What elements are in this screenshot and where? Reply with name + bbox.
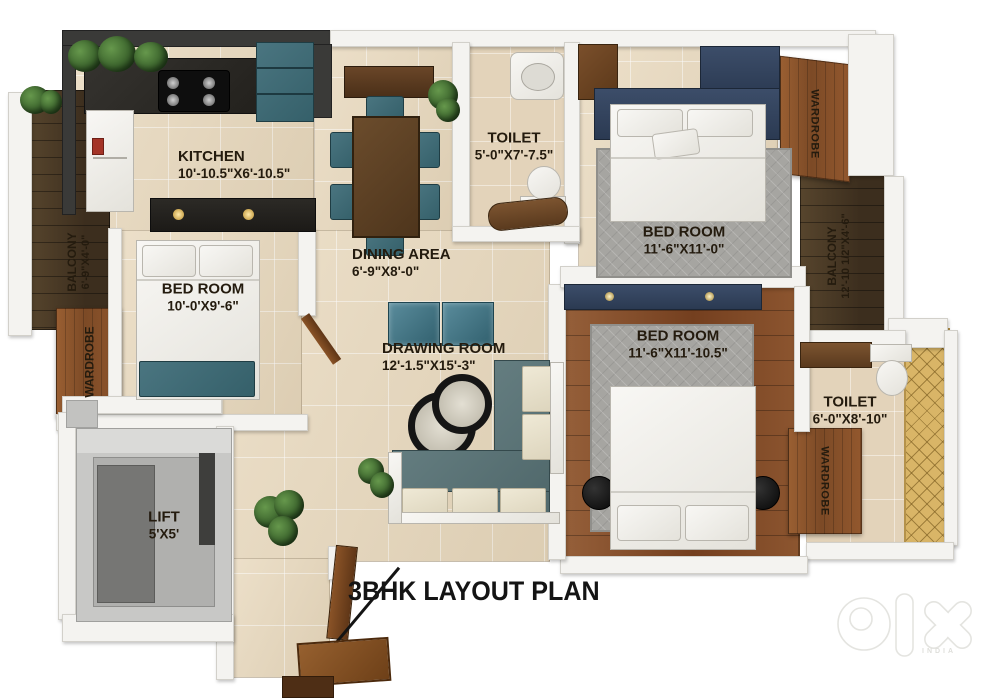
kitchen-label: KITCHEN 10'-10.5"X6'-10.5" bbox=[178, 148, 290, 183]
toilet-top-label: TOILET 5'-0"X7'-7.5" bbox=[475, 130, 554, 165]
wall-below-bedroom-br bbox=[560, 556, 808, 574]
plant-kitchen bbox=[68, 36, 172, 76]
olx-india-text: INDIA bbox=[922, 648, 956, 655]
coffee-table-2 bbox=[432, 374, 492, 434]
burner bbox=[203, 94, 215, 106]
bedroom-br-label: BED ROOM 11'-6"X11'-10.5" bbox=[628, 328, 728, 363]
bedroom-tr-bed bbox=[610, 104, 766, 222]
toilet-top-wc-bowl bbox=[527, 166, 561, 200]
lobby-step bbox=[66, 400, 98, 428]
bedroom-tr-label: BED ROOM 11'-6"X11'-0" bbox=[643, 224, 726, 259]
wall-bedroom-left-right bbox=[298, 228, 316, 316]
kitchen-cabinet-teal bbox=[256, 42, 314, 122]
wall-top-right-corner bbox=[848, 34, 894, 176]
balcony-right-dims: 12'-10 1/2"X4'-6" bbox=[840, 213, 853, 298]
bedroom-br-valance bbox=[564, 284, 762, 310]
pillow bbox=[199, 245, 253, 277]
shelf-line bbox=[257, 93, 313, 95]
wall-dining-toilet bbox=[452, 42, 470, 236]
pillow bbox=[685, 505, 749, 541]
pillow-accent bbox=[651, 128, 700, 160]
balcony-left-dims: 6'-9"X4'-0" bbox=[80, 232, 93, 291]
bed-bench bbox=[139, 361, 255, 397]
lift-label: LIFT 5'X5' bbox=[148, 509, 180, 544]
dining-console bbox=[344, 66, 434, 98]
burner bbox=[167, 94, 179, 106]
toilet-right-wc-bowl bbox=[876, 360, 908, 396]
balcony-right-label: BALCONY 12'-10 1/2"X4'-6" bbox=[825, 213, 853, 298]
toilet-top-sink bbox=[510, 52, 564, 100]
bedroom-tr-dims: 11'-6"X11'-0" bbox=[643, 242, 726, 258]
drawing-room-label: DRAWING ROOM 12'-1.5"X15'-3" bbox=[382, 340, 505, 375]
wall-light bbox=[705, 292, 714, 301]
wall-mosaic-right bbox=[944, 330, 958, 546]
kitchen-name: KITCHEN bbox=[178, 148, 290, 166]
wall-light bbox=[605, 292, 614, 301]
wardrobe-tr-label: WARDROBE bbox=[807, 89, 820, 158]
plant-dining bbox=[428, 80, 462, 126]
toilet-right-name: TOILET bbox=[813, 394, 888, 412]
sofa-cushion bbox=[522, 366, 552, 412]
sofa-front-edge bbox=[396, 512, 560, 524]
drawing-room-name: DRAWING ROOM bbox=[382, 340, 505, 358]
bedroom-left-label: BED ROOM 10'-0'X9'-6" bbox=[162, 281, 245, 316]
plant-balcony-left bbox=[18, 84, 64, 120]
balcony-left-label: BALCONY 6'-9"X4'-0" bbox=[65, 232, 93, 291]
burner bbox=[167, 77, 179, 89]
bedroom-left-bed bbox=[136, 240, 260, 400]
kitchen-fridge bbox=[86, 110, 134, 212]
drawing-room-dims: 12'-1.5"X15'-3" bbox=[382, 358, 505, 374]
toilet-right-counter bbox=[800, 342, 872, 368]
kitchen-dims: 10'-10.5"X6'-10.5" bbox=[178, 166, 290, 182]
dining-label: DINING AREA 6'-9"X8'-0" bbox=[352, 246, 451, 281]
plant-drawing bbox=[358, 456, 396, 500]
fridge-line bbox=[93, 157, 127, 159]
lift-name: LIFT bbox=[148, 509, 180, 527]
duvet-fold bbox=[611, 491, 755, 493]
balcony-left-name: BALCONY bbox=[65, 232, 80, 291]
burner bbox=[203, 77, 215, 89]
plant-corridor bbox=[254, 490, 306, 550]
dining-name: DINING AREA bbox=[352, 246, 451, 264]
ceiling-light bbox=[243, 209, 254, 220]
lift-top-face bbox=[77, 429, 231, 453]
lift-dims: 5'X5' bbox=[148, 527, 180, 543]
bedroom-left-name: BED ROOM bbox=[162, 281, 245, 299]
dining-dims: 6'-9"X8'-0" bbox=[352, 264, 451, 280]
wardrobe-br-label: WARDROBE bbox=[817, 446, 830, 515]
wall-bedroom-left-outer bbox=[108, 228, 122, 420]
ceiling-light bbox=[173, 209, 184, 220]
lift-door bbox=[97, 465, 155, 603]
bedroom-br-bed bbox=[610, 386, 756, 550]
balcony-right-name: BALCONY bbox=[825, 213, 840, 298]
bedroom-br-dims: 11'-6"X11'-10.5" bbox=[628, 346, 728, 362]
shelf-line bbox=[257, 67, 313, 69]
toilet-top-dims: 5'-0"X7'-7.5" bbox=[475, 148, 554, 164]
wardrobe-left-label: WARDROBE bbox=[83, 326, 98, 397]
duvet-fold bbox=[611, 157, 765, 159]
balcony-left-railing bbox=[8, 92, 32, 336]
plan-title: 3BHK LAYOUT PLAN bbox=[348, 576, 600, 607]
sofa-cushion bbox=[522, 414, 552, 460]
entry-step bbox=[282, 676, 334, 698]
wall-kitchen-dining bbox=[312, 44, 332, 118]
pillow bbox=[142, 245, 196, 277]
basin bbox=[521, 63, 555, 91]
pillow bbox=[617, 505, 681, 541]
toilet-top-name: TOILET bbox=[475, 130, 554, 148]
toilet-right-dims: 6'-0"X8'-10" bbox=[813, 412, 888, 428]
stove bbox=[158, 70, 230, 112]
lift-door-edge bbox=[199, 453, 215, 545]
bedroom-br-name: BED ROOM bbox=[628, 328, 728, 346]
kitchen-lower-counter bbox=[150, 198, 316, 232]
dining-table bbox=[352, 116, 420, 238]
bedroom-tr-name: BED ROOM bbox=[643, 224, 726, 242]
floor-plan: KITCHEN 10'-10.5"X6'-10.5" DINING AREA 6… bbox=[0, 0, 1000, 698]
wall-lift-left bbox=[58, 412, 76, 620]
kitchen-red-item bbox=[92, 138, 104, 155]
bedroom-left-dims: 10'-0'X9'-6" bbox=[162, 299, 245, 315]
sofa-armrest-right bbox=[550, 362, 564, 474]
wall-below-toilet-right bbox=[806, 542, 954, 560]
toilet-right-label: TOILET 6'-0"X8'-10" bbox=[813, 394, 888, 429]
